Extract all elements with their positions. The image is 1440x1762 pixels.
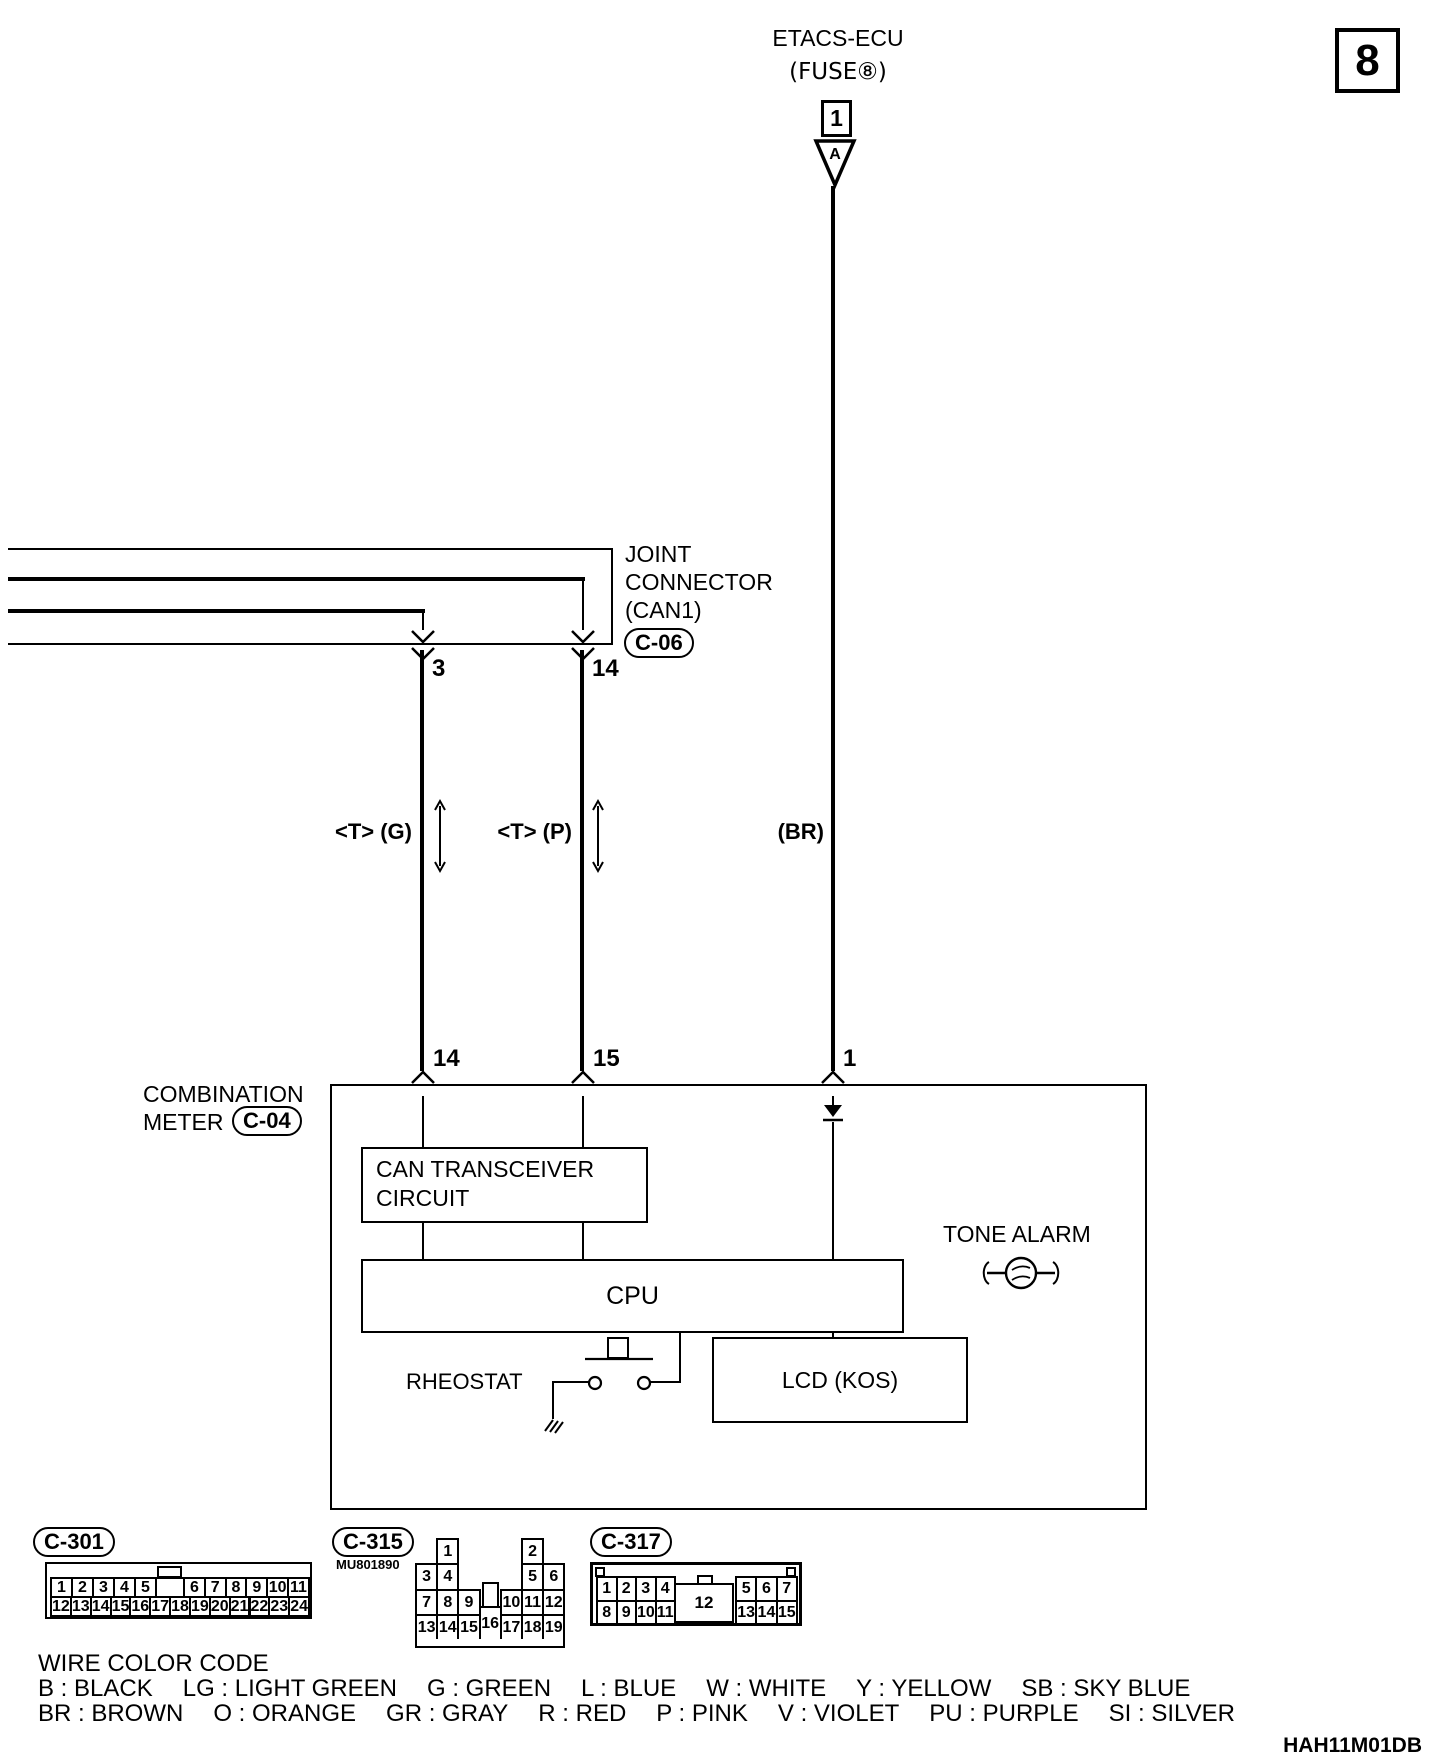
wiring-diagram-page: 8 ETACS-ECU (FUSE⑧) 1 A (BR) 3 14 JOINT …: [0, 0, 1440, 1762]
wire-color-entry-v: V : VIOLET: [778, 1701, 899, 1727]
chevron-down-icon: [409, 629, 437, 644]
wire-color-entry-sb: SB : SKY BLUE: [1021, 1676, 1190, 1702]
wire-switch-to-ground-h: [552, 1381, 590, 1383]
connector-pin-8: 8: [225, 1577, 248, 1598]
lcd-kos-box: LCD (KOS): [712, 1337, 968, 1423]
connector-pin-6: 6: [542, 1563, 565, 1591]
connector-pin-3: 3: [415, 1563, 438, 1591]
wire-color-entry-g: G : GREEN: [427, 1676, 551, 1702]
connector-pin-24: 24: [288, 1596, 310, 1617]
connector-pin-12: 12: [542, 1589, 565, 1616]
wire-color-entry-b: B : BLACK: [38, 1676, 153, 1702]
etacs-fuse-subtitle: (FUSE⑧): [758, 58, 918, 86]
rheostat-label: RHEOSTAT: [406, 1368, 523, 1396]
connector-pin-9: 9: [457, 1589, 480, 1616]
connector-pin-13: 13: [735, 1600, 757, 1625]
can-transceiver-label-1: CAN TRANSCEIVER: [376, 1155, 646, 1184]
c315-part-number: MU801890: [336, 1557, 400, 1572]
connector-pin-19: 19: [542, 1614, 565, 1641]
wire-switch-to-ground-v: [552, 1381, 554, 1419]
wire-color-entry-l: L : BLUE: [581, 1676, 676, 1702]
connector-pin-5: 5: [134, 1577, 157, 1598]
tone-alarm-label: TONE ALARM: [943, 1220, 1091, 1248]
connector-pin-13: 13: [415, 1614, 438, 1641]
wire-br-power: [831, 186, 835, 1071]
connector-pin-15: 15: [776, 1600, 798, 1625]
can-p-bus-line: [8, 577, 585, 581]
connector-pin-15: 15: [457, 1614, 480, 1641]
etacs-pin-number: 1: [830, 105, 843, 132]
connector-code-c315: C-315: [332, 1527, 414, 1557]
diode-icon: [819, 1104, 847, 1124]
connector-pin-2: 2: [616, 1576, 638, 1602]
connector-key-slot: [482, 1582, 499, 1608]
c04-pin-can-g: 14: [433, 1046, 460, 1072]
joint-connector-label-2: CONNECTOR: [625, 568, 773, 596]
joint-connector-right-edge: [611, 548, 613, 645]
can-bus-rail-top: [8, 548, 613, 550]
chevron-down-icon: [569, 629, 597, 644]
chevron-up-icon: [409, 1070, 437, 1085]
connector-pin-18: 18: [169, 1596, 191, 1617]
connector-code-c06: C-06: [624, 628, 694, 658]
connector-pin-4: 4: [436, 1563, 459, 1591]
wire-color-entry-br: BR : BROWN: [38, 1701, 183, 1727]
connector-pin-18: 18: [521, 1614, 544, 1641]
wire-can-p: [580, 650, 584, 1071]
wire-transceiver-to-cpu-1: [422, 1223, 424, 1259]
combination-meter-name-1: COMBINATION: [143, 1080, 304, 1108]
pushbutton-switch-icon: [575, 1329, 665, 1397]
connector-key-slot: [155, 1577, 185, 1598]
connector-code-c317: C-317: [590, 1527, 672, 1557]
wire-color-entry-o: O : ORANGE: [213, 1701, 356, 1727]
etacs-pin-box: 1: [821, 100, 852, 137]
connector-pin-5: 5: [735, 1576, 757, 1602]
wire-can-g: [420, 650, 424, 1071]
twisted-pair-arrow-icon: [590, 798, 606, 874]
connector-pin-19: 19: [189, 1596, 211, 1617]
wire-color-entry-gr: GR : GRAY: [386, 1701, 508, 1727]
can-transceiver-box: CAN TRANSCEIVER CIRCUIT: [361, 1147, 648, 1223]
sheet-number: 8: [1355, 36, 1379, 86]
connector-pin-1: 1: [596, 1576, 618, 1602]
wire-color-entry-p: P : PINK: [656, 1701, 748, 1727]
connector-pin-14: 14: [755, 1600, 777, 1625]
combination-meter-name-2: METER: [143, 1108, 224, 1136]
cpu-label: CPU: [606, 1282, 659, 1311]
can-transceiver-label-2: CIRCUIT: [376, 1184, 646, 1213]
etacs-ecu-title: ETACS-ECU: [758, 24, 918, 52]
wire-transceiver-to-cpu-2: [582, 1223, 584, 1259]
connector-pin-16: 16: [479, 1606, 502, 1641]
connector-pin-4: 4: [113, 1577, 136, 1598]
sheet-number-box: 8: [1335, 28, 1400, 93]
connector-pin-15: 15: [110, 1596, 132, 1617]
document-code: HAH11M01DB: [1240, 1732, 1422, 1760]
c04-pin-power: 1: [843, 1046, 856, 1072]
connector-pin-2: 2: [71, 1577, 94, 1598]
connector-pin-5: 5: [521, 1563, 544, 1591]
wire-can-p-internal: [582, 1096, 584, 1147]
lcd-kos-label: LCD (KOS): [782, 1367, 898, 1394]
connector-pin-14: 14: [436, 1614, 459, 1641]
tone-alarm-speaker-icon: [971, 1252, 1071, 1294]
connector-pin-16: 16: [129, 1596, 151, 1617]
connector-pin-12: 12: [50, 1596, 72, 1617]
can-p-drop-thin: [582, 577, 584, 630]
connector-pin-17: 17: [149, 1596, 171, 1617]
twisted-pair-arrow-icon: [432, 798, 448, 874]
c06-pin-left: 3: [432, 656, 445, 682]
wire-color-code-title: WIRE COLOR CODE: [38, 1650, 269, 1678]
wire-cpu-to-switch-v: [679, 1333, 681, 1383]
connector-pin-8: 8: [596, 1600, 618, 1625]
connector-a-triangle-icon: A: [812, 138, 858, 188]
can-g-bus-line: [8, 609, 425, 613]
connector-pin-13: 13: [70, 1596, 92, 1617]
connector-pin-20: 20: [209, 1596, 231, 1617]
connector-pin-14: 14: [90, 1596, 112, 1617]
connector-pin-9: 9: [616, 1600, 638, 1625]
triangle-a-label: A: [829, 146, 841, 163]
connector-pin-3: 3: [92, 1577, 115, 1598]
connector-pin-6: 6: [183, 1577, 206, 1598]
connector-pin-10: 10: [635, 1600, 657, 1625]
wire-color-entry-w: W : WHITE: [706, 1676, 826, 1702]
connector-pin-1: 1: [50, 1577, 73, 1598]
connector-pin-2: 2: [521, 1538, 544, 1565]
chevron-up-icon: [819, 1070, 847, 1085]
connector-pin-6: 6: [755, 1576, 777, 1602]
connector-pin-10: 10: [500, 1589, 523, 1616]
c317-center-pin: 12: [674, 1583, 734, 1623]
joint-connector-bottom-edge: [8, 643, 613, 645]
wire-color-code-line-1: B : BLACKLG : LIGHT GREENG : GREENL : BL…: [38, 1676, 1190, 1702]
connector-pin-23: 23: [268, 1596, 290, 1617]
wire-label-can-g: <T> (G): [292, 818, 412, 846]
c06-pin-right: 14: [592, 656, 619, 682]
connector-pin-8: 8: [436, 1589, 459, 1616]
ground-icon: [541, 1416, 567, 1434]
wire-color-entry-y: Y : YELLOW: [856, 1676, 991, 1702]
chevron-up-icon: [569, 1070, 597, 1085]
c315-housing-base: [415, 1639, 565, 1648]
connector-pin-11: 11: [521, 1589, 544, 1616]
connector-code-c301: C-301: [33, 1527, 115, 1557]
wire-label-can-p: <T> (P): [452, 818, 572, 846]
cpu-box: CPU: [361, 1259, 904, 1333]
connector-pin-22: 22: [249, 1596, 271, 1617]
wire-color-entry-r: R : RED: [538, 1701, 626, 1727]
connector-pin-1: 1: [436, 1538, 459, 1565]
joint-connector-label-3: (CAN1): [625, 596, 702, 624]
connector-pin-4: 4: [655, 1576, 677, 1602]
connector-pin-7: 7: [415, 1589, 438, 1616]
connector-pin-11: 11: [287, 1577, 310, 1598]
connector-pin-10: 10: [266, 1577, 289, 1598]
connector-code-c04: C-04: [232, 1106, 302, 1136]
connector-pin-7: 7: [204, 1577, 227, 1598]
wire-label-br: (BR): [704, 818, 824, 846]
wire-color-code-line-2: BR : BROWNO : ORANGEGR : GRAYR : REDP : …: [38, 1701, 1235, 1727]
connector-pin-7: 7: [776, 1576, 798, 1602]
connector-pin-11: 11: [655, 1600, 677, 1625]
wire-color-entry-si: SI : SILVER: [1109, 1701, 1235, 1727]
connector-pin-21: 21: [229, 1596, 251, 1617]
wire-color-entry-lg: LG : LIGHT GREEN: [183, 1676, 397, 1702]
joint-connector-label-1: JOINT: [625, 540, 691, 568]
wire-color-entry-pu: PU : PURPLE: [929, 1701, 1078, 1727]
wire-can-g-internal: [422, 1096, 424, 1147]
can-g-drop-thin: [422, 609, 424, 630]
connector-pin-9: 9: [245, 1577, 268, 1598]
connector-pin-3: 3: [635, 1576, 657, 1602]
c04-pin-can-p: 15: [593, 1046, 620, 1072]
connector-pin-17: 17: [500, 1614, 523, 1641]
